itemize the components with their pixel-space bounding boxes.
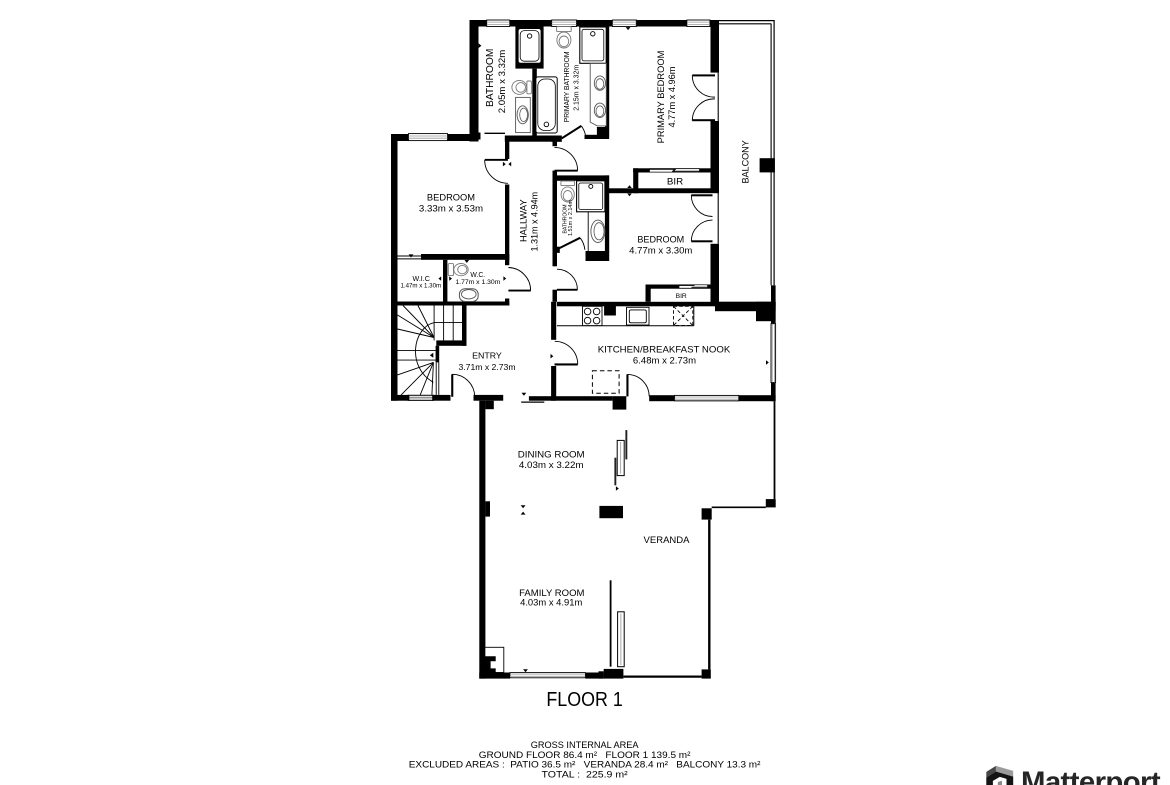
svg-text:TOTAL : 225.9 m²: TOTAL : 225.9 m² <box>542 768 628 779</box>
svg-text:KITCHEN/BREAKFAST NOOK: KITCHEN/BREAKFAST NOOK <box>598 344 731 355</box>
svg-text:PRIMARY BATHROOM: PRIMARY BATHROOM <box>564 51 571 122</box>
svg-text:4.03m x 4.91m: 4.03m x 4.91m <box>520 598 582 608</box>
svg-text:FLOOR 1: FLOOR 1 <box>546 689 622 711</box>
svg-text:4.77m x 4.96m: 4.77m x 4.96m <box>667 66 677 127</box>
svg-text:1.51m x 2.14m: 1.51m x 2.14m <box>568 199 574 236</box>
svg-text:3.71m x 2.73m: 3.71m x 2.73m <box>459 362 516 372</box>
svg-text:FAMILY ROOM: FAMILY ROOM <box>519 588 584 598</box>
svg-text:1.77m x 1.30m: 1.77m x 1.30m <box>455 279 500 286</box>
svg-text:ENTRY: ENTRY <box>472 351 502 361</box>
svg-text:2.05m x 3.32m: 2.05m x 3.32m <box>497 50 508 114</box>
svg-text:PRIMARY BEDROOM: PRIMARY BEDROOM <box>656 51 666 144</box>
svg-text:BIR: BIR <box>667 176 683 187</box>
svg-text:1.47m x 1.30m: 1.47m x 1.30m <box>400 282 441 289</box>
svg-text:1.31m x 4.94m: 1.31m x 4.94m <box>529 192 539 252</box>
svg-text:4.77m x 3.30m: 4.77m x 3.30m <box>629 246 692 257</box>
svg-text:BEDROOM: BEDROOM <box>427 193 475 203</box>
svg-text:BATHROOM: BATHROOM <box>485 49 496 107</box>
svg-text:BALCONY: BALCONY <box>741 140 751 183</box>
svg-text:VERANDA: VERANDA <box>644 535 691 546</box>
svg-text:BIR: BIR <box>676 293 687 300</box>
svg-text:2.15m x 3.32m: 2.15m x 3.32m <box>573 65 580 111</box>
svg-text:Matterport: Matterport <box>1021 767 1161 785</box>
svg-text:4.03m x 3.22m: 4.03m x 3.22m <box>519 460 584 471</box>
svg-text:HALLWAY: HALLWAY <box>519 199 529 242</box>
svg-text:BEDROOM: BEDROOM <box>637 235 684 245</box>
svg-text:3.33m x 3.53m: 3.33m x 3.53m <box>419 204 483 215</box>
svg-text:DINING ROOM: DINING ROOM <box>518 449 585 460</box>
svg-text:6.48m x 2.73m: 6.48m x 2.73m <box>633 356 696 367</box>
svg-text:W.C.: W.C. <box>470 272 485 279</box>
